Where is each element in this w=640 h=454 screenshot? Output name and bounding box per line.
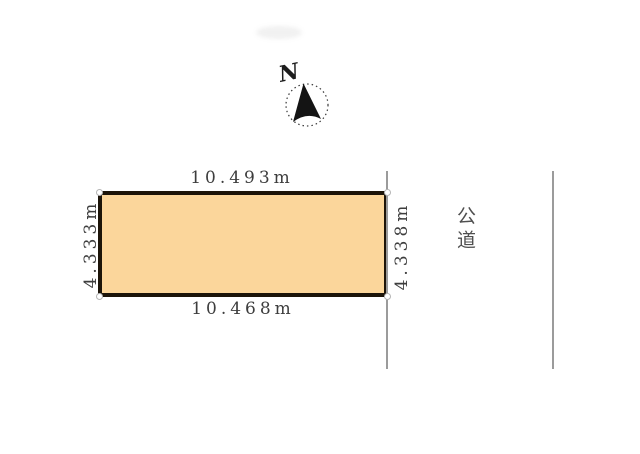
dimension-left: 4.333m bbox=[81, 189, 101, 299]
survey-point-bottom-right bbox=[384, 293, 391, 300]
survey-point-top-left bbox=[96, 189, 103, 196]
public-road-label: 公道 bbox=[452, 206, 479, 254]
land-plot-diagram: N 10.493m 10.468m 4.333m 4.338m 公道 bbox=[0, 0, 640, 454]
road-boundary-line-far bbox=[552, 171, 554, 369]
dimension-bottom: 10.468m bbox=[143, 299, 343, 319]
dimension-right: 4.338m bbox=[392, 191, 412, 301]
road-boundary-line-near bbox=[386, 171, 388, 369]
land-parcel bbox=[98, 191, 388, 297]
survey-point-bottom-left bbox=[96, 293, 103, 300]
survey-point-top-right bbox=[384, 189, 391, 196]
parcel-area: 10.493m 10.468m 4.333m 4.338m 公道 bbox=[0, 0, 640, 454]
dimension-top: 10.493m bbox=[142, 168, 342, 188]
